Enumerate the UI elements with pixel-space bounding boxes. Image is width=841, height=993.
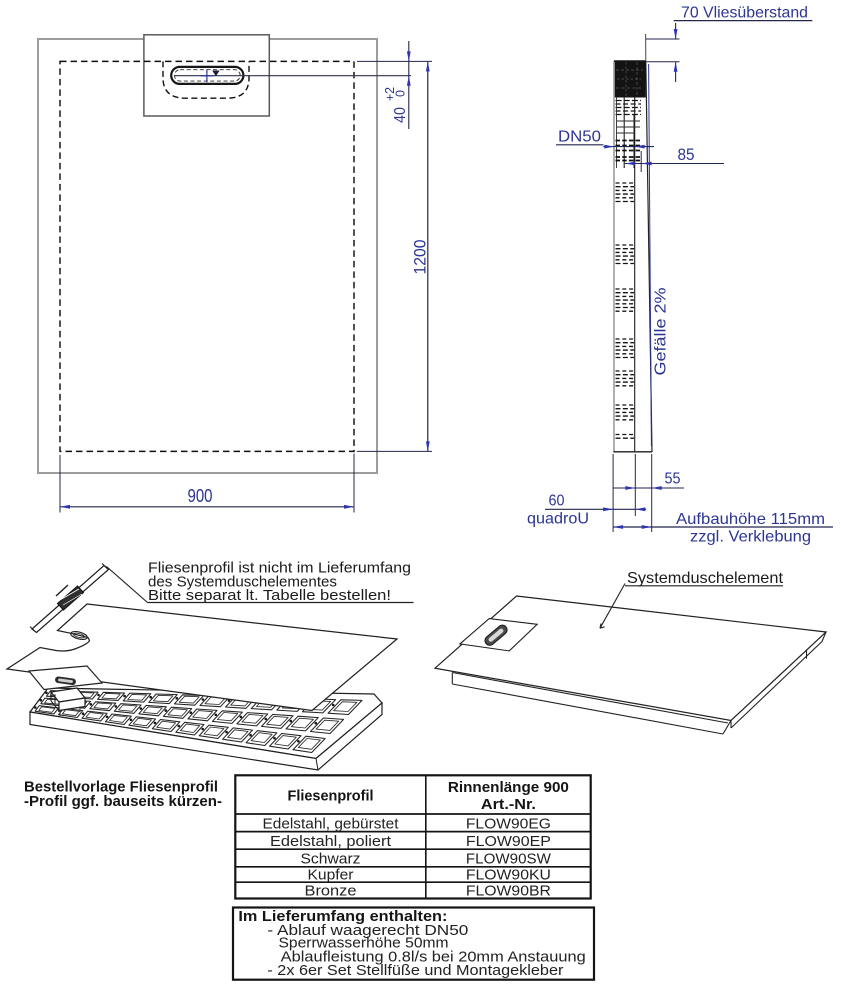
svg-text:60: 60 (549, 493, 565, 510)
svg-text:Fliesenprofil: Fliesenprofil (288, 788, 374, 805)
svg-text:FLOW90EG: FLOW90EG (466, 816, 551, 833)
svg-text:Aufbauhöhe 115mm: Aufbauhöhe 115mm (676, 511, 825, 528)
svg-text:FLOW90EP: FLOW90EP (466, 833, 551, 850)
svg-text:Bitte separat lt. Tabelle best: Bitte separat lt. Tabelle bestellen! (148, 588, 391, 604)
svg-text:Gefälle 2%: Gefälle 2% (653, 288, 670, 376)
svg-text:- 2x 6er Set Stellfüße und Mon: - 2x 6er Set Stellfüße und Montagekleber (267, 962, 563, 979)
svg-text:Kupfer: Kupfer (308, 866, 354, 883)
svg-text:FLOW90BR: FLOW90BR (466, 882, 551, 899)
svg-text:FLOW90KU: FLOW90KU (466, 866, 551, 883)
svg-text:quadroU: quadroU (527, 511, 589, 528)
svg-text:85: 85 (678, 145, 695, 164)
svg-text:0: 0 (394, 90, 408, 97)
svg-text:Art.-Nr.: Art.-Nr. (481, 796, 536, 813)
svg-text:900: 900 (188, 486, 213, 506)
svg-text:-Profil ggf. bauseits kürzen-: -Profil ggf. bauseits kürzen- (24, 793, 222, 810)
svg-text:55: 55 (665, 471, 681, 488)
svg-text:Edelstahl, poliert: Edelstahl, poliert (270, 833, 392, 850)
svg-text:Rinnenlänge 900: Rinnenlänge 900 (448, 779, 569, 796)
svg-text:Schwarz: Schwarz (301, 850, 361, 867)
svg-text:1200: 1200 (412, 240, 430, 275)
svg-text:Edelstahl, gebürstet: Edelstahl, gebürstet (263, 816, 400, 833)
svg-text:Bronze: Bronze (305, 882, 357, 899)
svg-text:Systemduschelement: Systemduschelement (627, 570, 784, 587)
svg-text:zzgl. Verklebung: zzgl. Verklebung (690, 529, 811, 546)
svg-text:40: 40 (392, 107, 409, 123)
svg-text:FLOW90SW: FLOW90SW (466, 850, 552, 867)
svg-text:70 Vliesüberstand: 70 Vliesüberstand (681, 5, 808, 22)
svg-text:DN50: DN50 (558, 129, 601, 146)
